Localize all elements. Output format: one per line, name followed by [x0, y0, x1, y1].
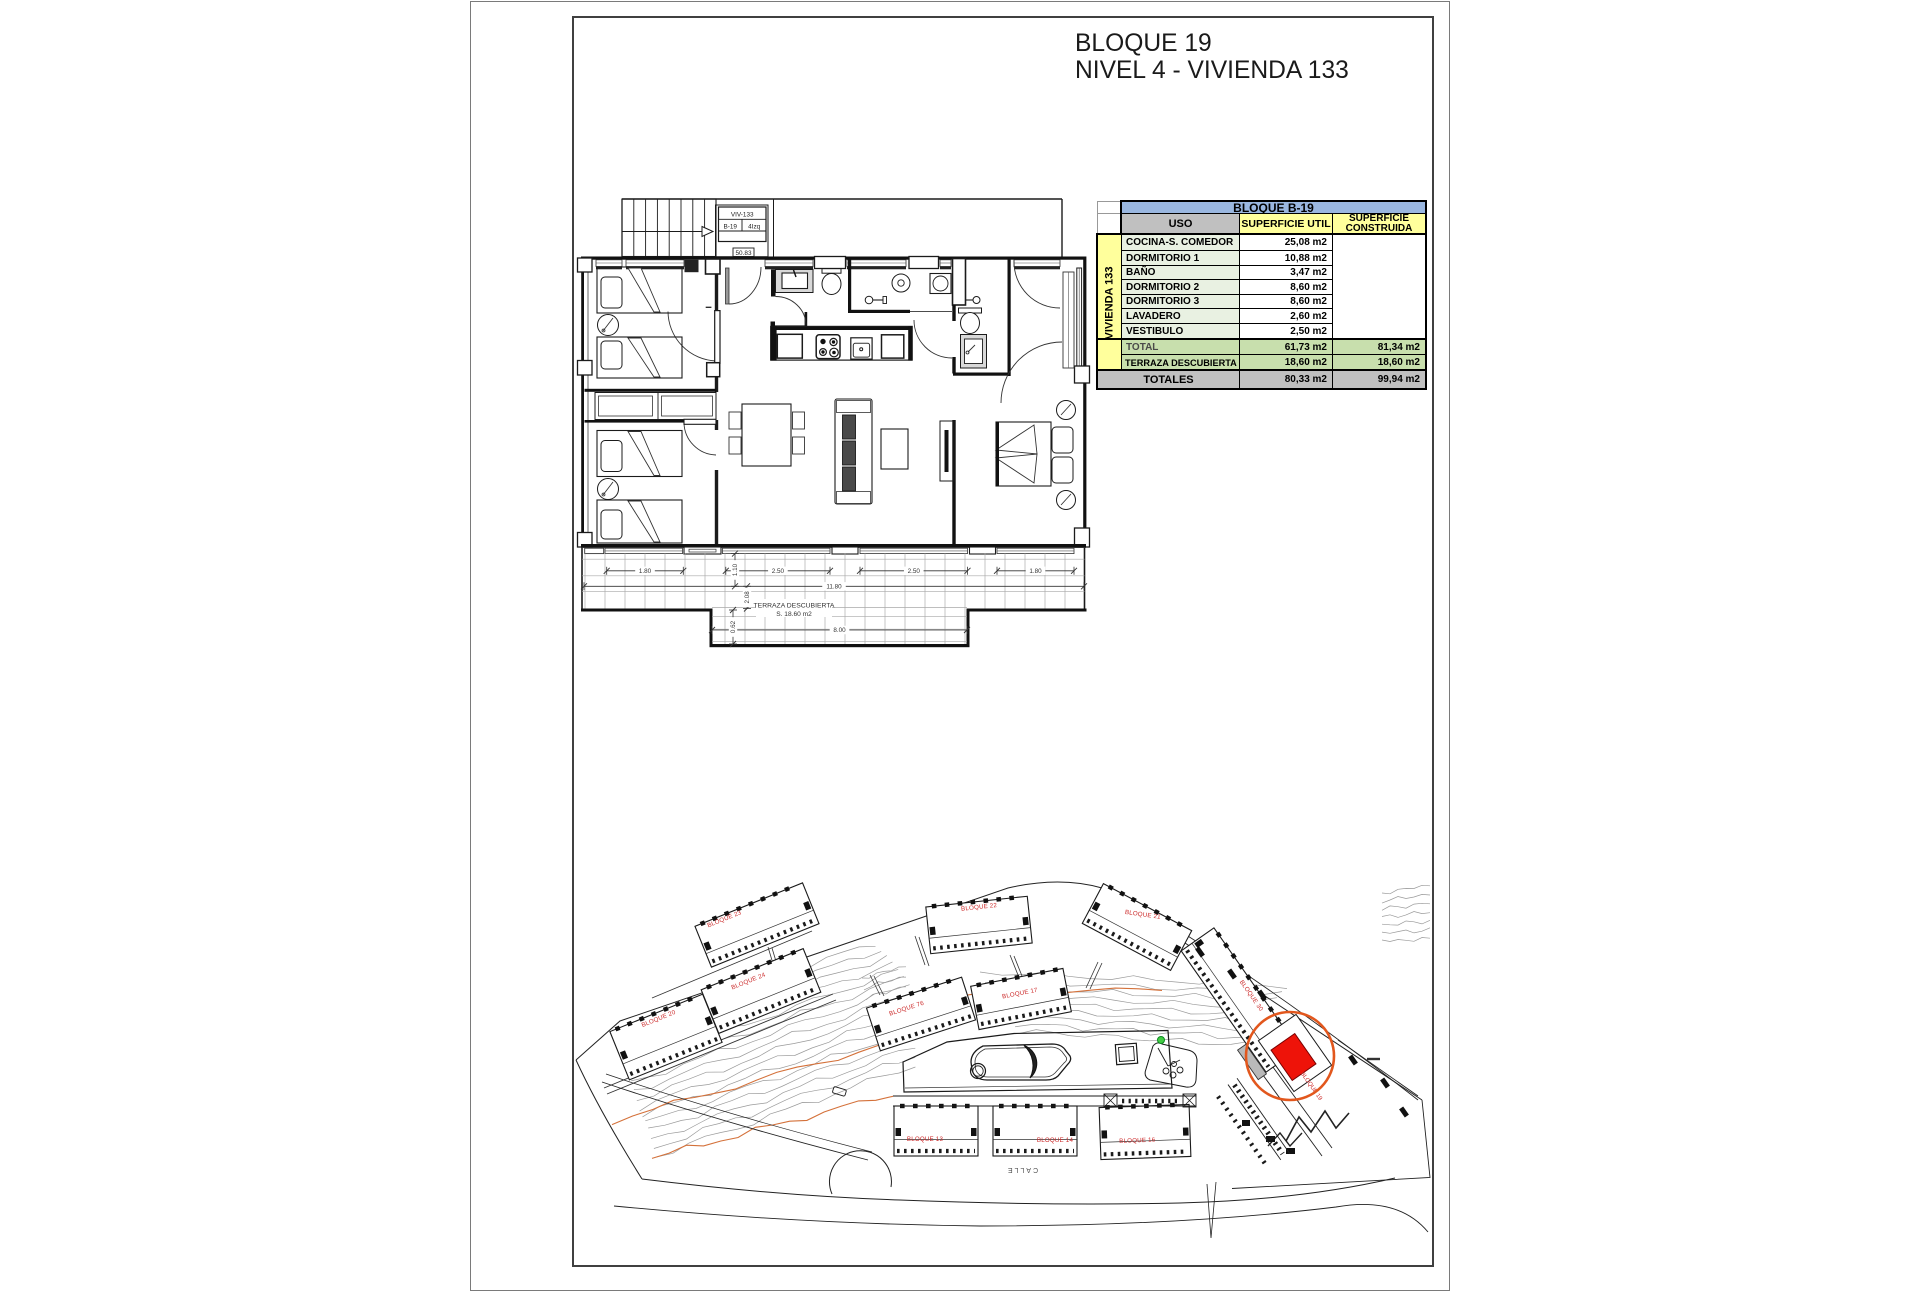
svg-text:1.10: 1.10: [732, 563, 739, 576]
svg-text:2.50: 2.50: [772, 568, 785, 575]
svg-text:8.00: 8.00: [833, 627, 846, 634]
svg-text:S. 18.60 m2: S. 18.60 m2: [776, 611, 812, 618]
svg-text:BLOQUE 13: BLOQUE 13: [907, 1136, 944, 1143]
svg-text:BLOQUE 16: BLOQUE 16: [1119, 1137, 1156, 1145]
svg-text:50.83: 50.83: [736, 250, 752, 257]
svg-text:B-19: B-19: [723, 223, 737, 230]
svg-text:VIV-133: VIV-133: [731, 211, 754, 218]
svg-text:BLOQUE 14: BLOQUE 14: [1037, 1137, 1074, 1144]
svg-text:4Izq: 4Izq: [748, 223, 761, 230]
svg-text:1.80: 1.80: [639, 568, 652, 575]
svg-text:2.50: 2.50: [908, 568, 921, 575]
svg-text:1.80: 1.80: [1029, 568, 1042, 575]
svg-text:2.08: 2.08: [744, 591, 751, 604]
svg-text:11.80: 11.80: [826, 584, 842, 591]
svg-text:TERRAZA DESCUBIERTA: TERRAZA DESCUBIERTA: [754, 603, 835, 610]
svg-text:CALLE: CALLE: [1006, 1166, 1038, 1173]
svg-text:0.62: 0.62: [730, 620, 737, 633]
